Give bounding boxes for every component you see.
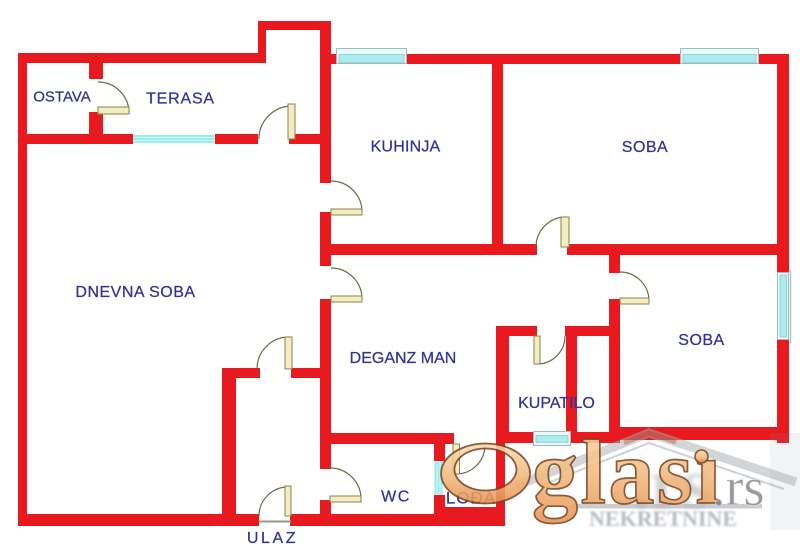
svg-text:DEGANZ MAN: DEGANZ MAN xyxy=(350,350,457,367)
svg-text:DNEVNA SOBA: DNEVNA SOBA xyxy=(75,284,195,301)
svg-text:KUPATILO: KUPATILO xyxy=(518,395,595,412)
svg-text:KUHINJA: KUHINJA xyxy=(371,139,441,156)
svg-text:.rs: .rs xyxy=(712,457,765,517)
svg-text:WC: WC xyxy=(381,489,411,506)
svg-text:glası: glası xyxy=(532,421,723,523)
svg-text:TERASA: TERASA xyxy=(146,91,215,108)
svg-text:SOBA: SOBA xyxy=(678,332,724,349)
svg-text:ULAZ: ULAZ xyxy=(247,530,298,547)
svg-text:SOBA: SOBA xyxy=(622,139,668,156)
svg-text:OSTAVA: OSTAVA xyxy=(33,89,91,106)
